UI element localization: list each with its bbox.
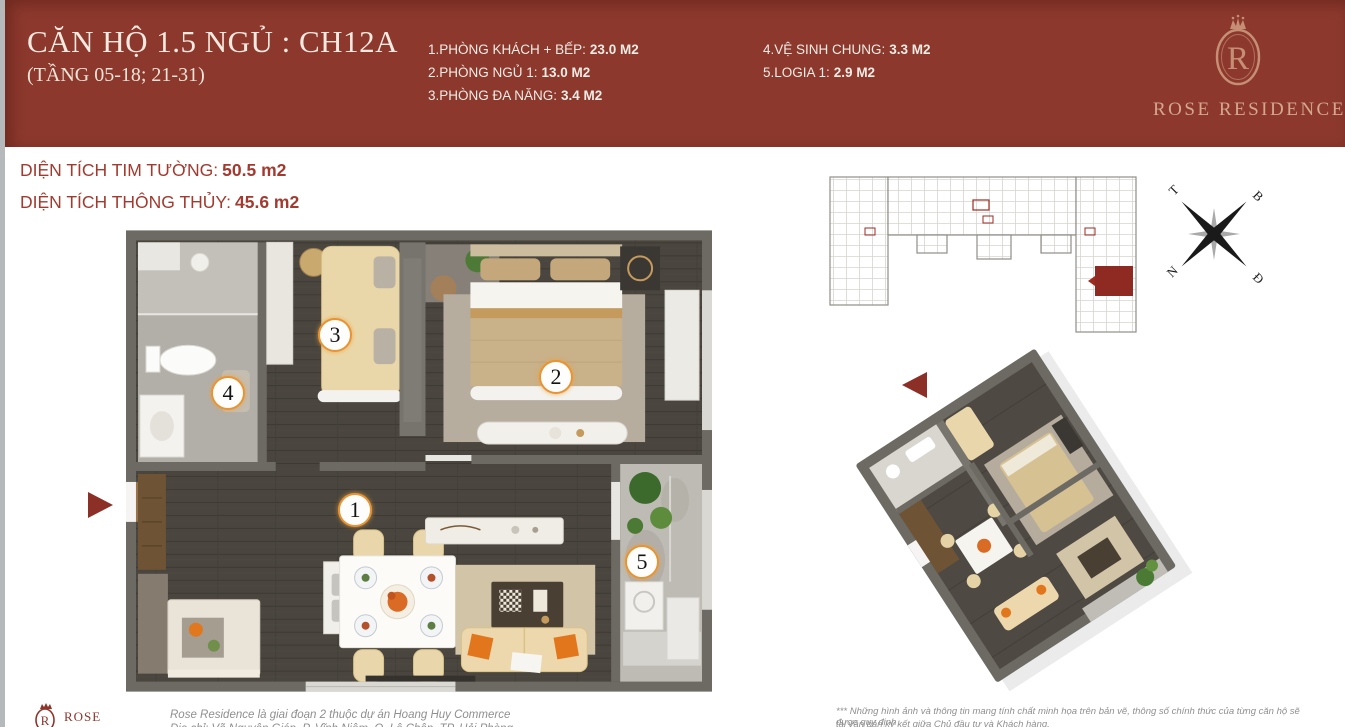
compass-east-label: Đ xyxy=(1250,270,1267,287)
compass-north-label: B xyxy=(1250,188,1267,205)
spec-line-bedroom1: 2.PHÒNG NGỦ 1:13.0 M2 xyxy=(428,61,639,84)
area-line-thong-thuy: DIỆN TÍCH THÔNG THỦY:45.6 m2 xyxy=(20,192,299,213)
spec-value: 3.4 M2 xyxy=(561,88,602,103)
rose-residence-monogram-icon: R xyxy=(1207,14,1269,90)
room-badge-multipurpose: 3 xyxy=(318,318,352,352)
floor-plan-render xyxy=(126,230,712,692)
footer-brand-name: ROSE xyxy=(64,709,101,725)
room-badge-living: 1 xyxy=(338,493,372,527)
area-label: DIỆN TÍCH THÔNG THỦY: xyxy=(20,192,231,212)
badge-number: 3 xyxy=(330,322,341,348)
brochure-page: CĂN HỘ 1.5 NGỦ : CH12A (TẦNG 05-18; 21-3… xyxy=(0,0,1345,727)
room-badge-bedroom: 2 xyxy=(539,360,573,394)
spec-label: 1.PHÒNG KHÁCH + BẾP: xyxy=(428,42,586,57)
spec-label: 2.PHÒNG NGỦ 1: xyxy=(428,65,538,80)
floor-range-subtitle: (TẦNG 05-18; 21-31) xyxy=(27,64,205,87)
spec-value: 23.0 M2 xyxy=(590,42,639,57)
spec-value: 13.0 M2 xyxy=(542,65,591,80)
footer-logo: R ROSE xyxy=(33,702,101,727)
spec-value: 2.9 M2 xyxy=(834,65,875,80)
room-badge-bathroom: 4 xyxy=(211,376,245,410)
footer-monogram-icon: R xyxy=(33,702,59,727)
footer-note-line2: Địa chỉ: Võ Nguyên Giáp, P. Vĩnh Niệm, Q… xyxy=(170,723,513,727)
room-badge-loggia: 5 xyxy=(625,545,659,579)
room-specs-column-1: 1.PHÒNG KHÁCH + BẾP:23.0 M2 2.PHÒNG NGỦ … xyxy=(428,38,639,107)
brand-name: ROSE RESIDENCE xyxy=(1153,99,1323,121)
spec-value: 3.3 M2 xyxy=(889,42,930,57)
compass-icon: T B N Đ xyxy=(1158,176,1268,288)
spec-line-bathroom: 4.VỆ SINH CHUNG:3.3 M2 xyxy=(763,38,931,61)
spec-label: 4.VỆ SINH CHUNG: xyxy=(763,42,885,57)
entry-arrow-icon xyxy=(88,492,113,518)
highlighted-unit xyxy=(1095,266,1133,296)
isometric-apartment-view xyxy=(843,331,1193,707)
room-specs-column-2: 4.VỆ SINH CHUNG:3.3 M2 5.LOGIA 1:2.9 M2 xyxy=(763,38,931,84)
floor-plan-2d: 1 2 3 4 5 xyxy=(126,230,712,692)
spec-label: 3.PHÒNG ĐA NĂNG: xyxy=(428,88,557,103)
badge-number: 2 xyxy=(551,364,562,390)
footer-monogram-letter: R xyxy=(41,713,50,727)
building-key-plan xyxy=(827,174,1139,334)
spec-line-loggia: 5.LOGIA 1:2.9 M2 xyxy=(763,61,931,84)
badge-number: 4 xyxy=(223,380,234,406)
area-line-tim-tuong: DIỆN TÍCH TIM TƯỜNG:50.5 m2 xyxy=(20,160,286,181)
compass-south-label: N xyxy=(1164,262,1182,280)
monogram-letter: R xyxy=(1227,41,1249,77)
isometric-render xyxy=(843,331,1193,707)
area-value: 45.6 m2 xyxy=(235,192,299,212)
key-plan-drawing xyxy=(827,174,1139,334)
badge-number: 5 xyxy=(637,549,648,575)
disclaimer-line2: tại văn bản ký kết giữa Chủ đầu tư và Kh… xyxy=(836,719,1316,727)
spec-line-living-kitchen: 1.PHÒNG KHÁCH + BẾP:23.0 M2 xyxy=(428,38,639,61)
spec-line-multipurpose: 3.PHÒNG ĐA NĂNG:3.4 M2 xyxy=(428,84,639,107)
compass-rose: T B N Đ xyxy=(1158,176,1268,288)
compass-west-label: T xyxy=(1166,182,1182,198)
page-title: CĂN HỘ 1.5 NGỦ : CH12A xyxy=(27,24,398,60)
footer-note-line1: Rose Residence là giai đoạn 2 thuộc dự á… xyxy=(170,709,510,721)
header-band: CĂN HỘ 1.5 NGỦ : CH12A (TẦNG 05-18; 21-3… xyxy=(5,0,1345,147)
spec-label: 5.LOGIA 1: xyxy=(763,65,830,80)
page-left-edge xyxy=(0,0,5,727)
area-value: 50.5 m2 xyxy=(222,160,286,180)
area-label: DIỆN TÍCH TIM TƯỜNG: xyxy=(20,160,218,180)
brand-logo: R ROSE RESIDENCE xyxy=(1153,14,1323,121)
badge-number: 1 xyxy=(350,497,361,523)
